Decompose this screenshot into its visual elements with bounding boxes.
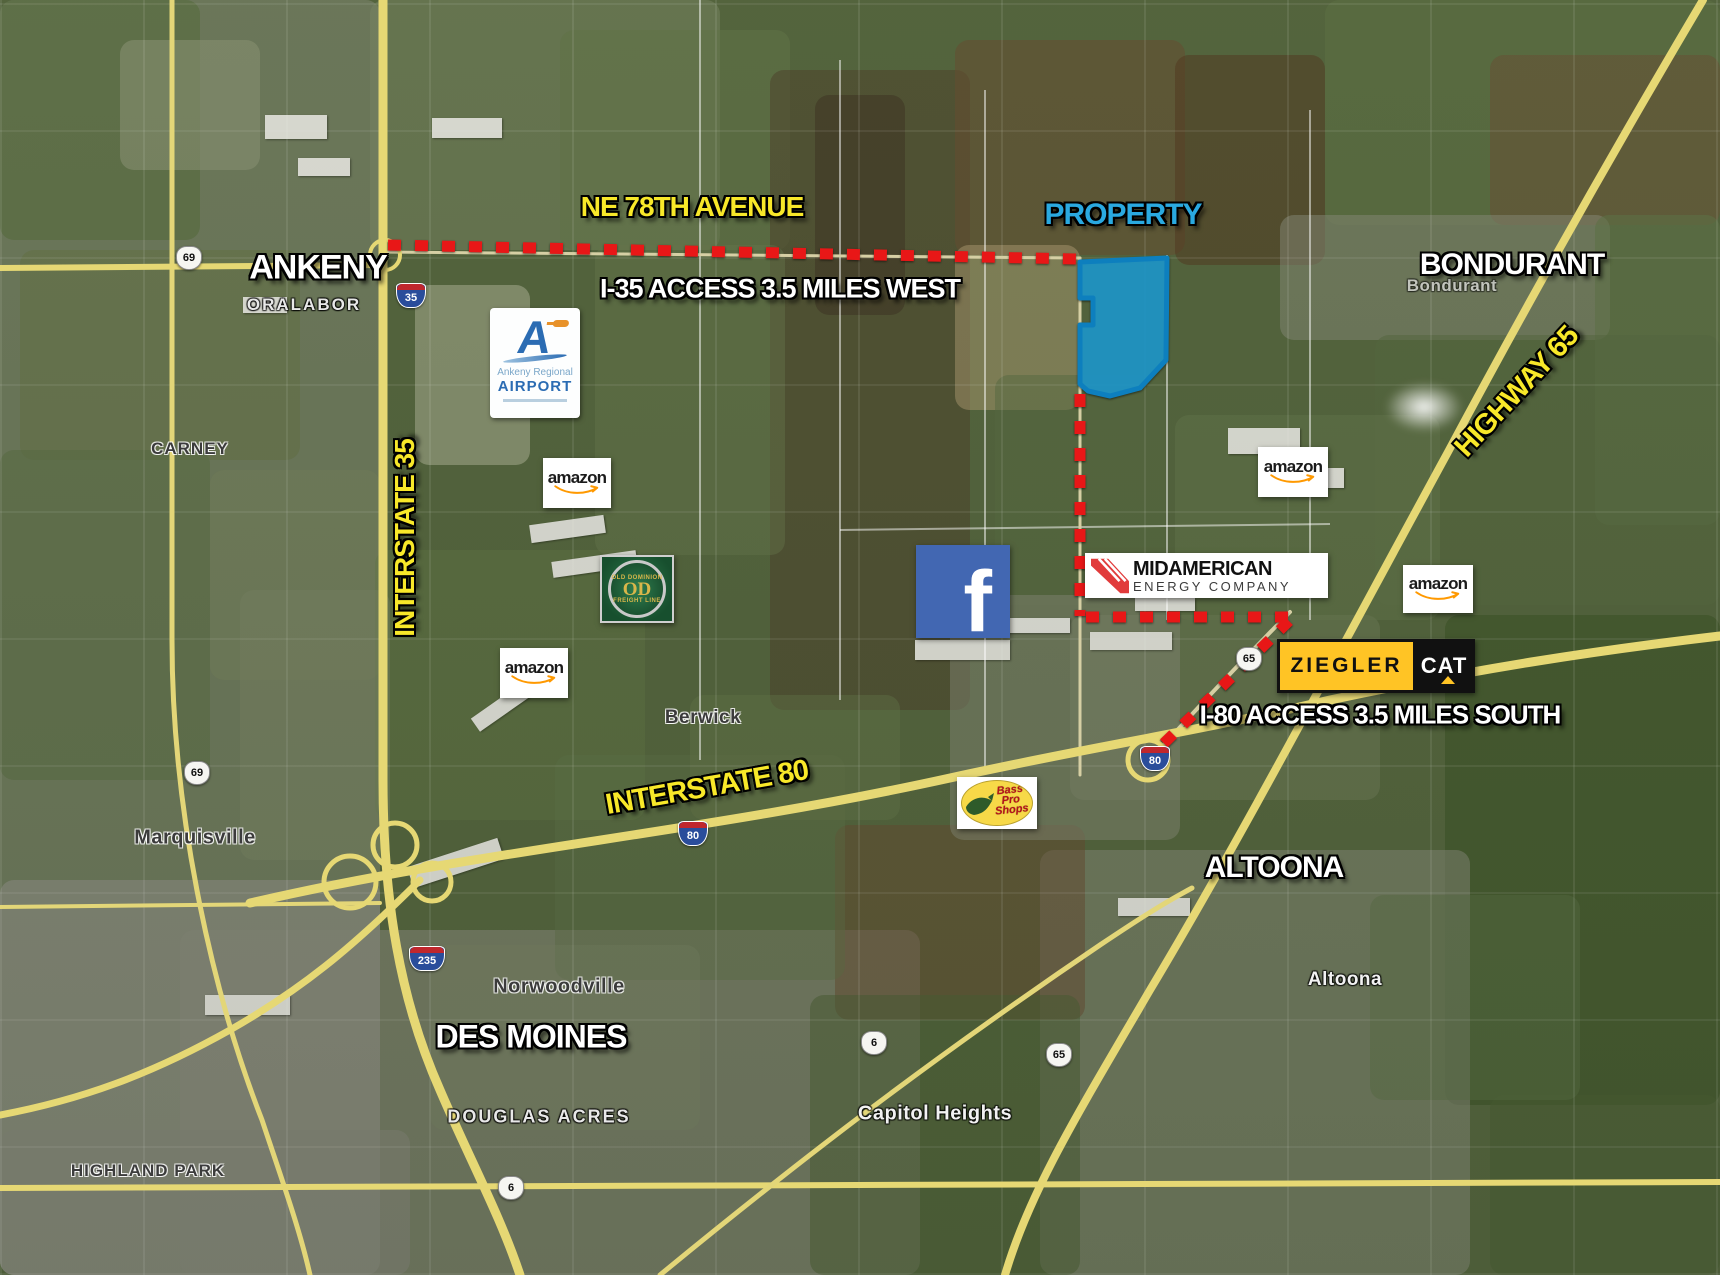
interstate-80-shield-west: 80 [678,821,708,846]
label-carney: CARNEY [151,439,229,459]
label-berwick: Berwick [665,707,741,729]
interstate-35-shield: 35 [396,283,426,308]
amazon-logo-3: amazon [1258,447,1328,497]
airport-tagline [503,399,567,402]
label-property: PROPERTY [1044,198,1201,232]
label-altoona: ALTOONA [1205,851,1344,885]
aerial-map: A Ankeny Regional AIRPORT amazon amazon … [0,0,1720,1275]
us-route-69-shield: 69 [176,246,202,270]
us-route-6-shield-east: 6 [498,1176,524,1200]
old-dominion-logo: OLD DOMINION OD FREIGHT LINE [600,555,674,623]
us-route-6-shield: 6 [861,1031,887,1055]
bass-pro-shops-logo: Bass Pro Shops [957,777,1037,829]
amazon-smile-icon [551,484,603,496]
airport-name: Ankeny Regional [497,367,573,378]
interstate-80-shield-east: 80 [1140,746,1170,771]
us-route-65-shield-north: 65 [1236,647,1262,671]
midamerican-energy-logo: MIDAMERICAN ENERGY COMPANY [1085,553,1328,598]
us-route-65-shield-south: 65 [1046,1043,1072,1067]
cat-triangle-icon [1441,676,1455,684]
airport-word: AIRPORT [498,378,573,395]
old-dominion-badge: OLD DOMINION OD FREIGHT LINE [608,560,666,618]
us-route-69-shield-south: 69 [184,761,210,785]
overlay-layer [0,0,1720,1275]
label-capitol-heights: Capitol Heights [858,1103,1012,1126]
label-norwoodville: Norwoodville [493,976,625,999]
ziegler-cat-logo: ZIEGLER CAT [1277,639,1475,693]
cat-logo: CAT [1413,639,1475,693]
label-i80-access: I-80 ACCESS 3.5 MILES SOUTH [1200,700,1561,731]
interstate-235-shield: 235 [409,946,445,971]
label-marquisville: Marquisville [134,827,256,850]
label-des-moines: DES MOINES [436,1019,627,1056]
amazon-smile-icon [1267,473,1319,485]
amazon-logo-2: amazon [500,648,568,698]
facebook-f-icon: f [963,559,992,638]
amazon-logo-4: amazon [1403,565,1473,613]
label-interstate-35: INTERSTATE 35 [389,439,421,637]
amazon-smile-icon [508,674,560,686]
ankeny-regional-airport-logo: A Ankeny Regional AIRPORT [490,308,580,418]
label-i35-access: I-35 ACCESS 3.5 MILES WEST [600,274,960,305]
facebook-logo: f [916,545,1010,638]
label-bondurant: BONDURANT [1420,248,1604,282]
label-highland-park: HIGHLAND PARK [71,1161,225,1181]
midamerican-mark-icon [1091,558,1129,594]
label-ne-78th-avenue: NE 78TH AVENUE [581,191,804,223]
helicopter-icon [553,320,570,327]
amazon-smile-icon [1412,590,1464,602]
label-douglas-acres: DOUGLAS ACRES [447,1107,630,1128]
property-boundary [1080,258,1167,396]
label-ankeny: ANKENY [249,249,387,288]
label-altoona-small: Altoona [1308,969,1382,991]
amazon-logo-1: amazon [543,458,611,508]
label-oralabor: ORALABOR [247,295,361,315]
